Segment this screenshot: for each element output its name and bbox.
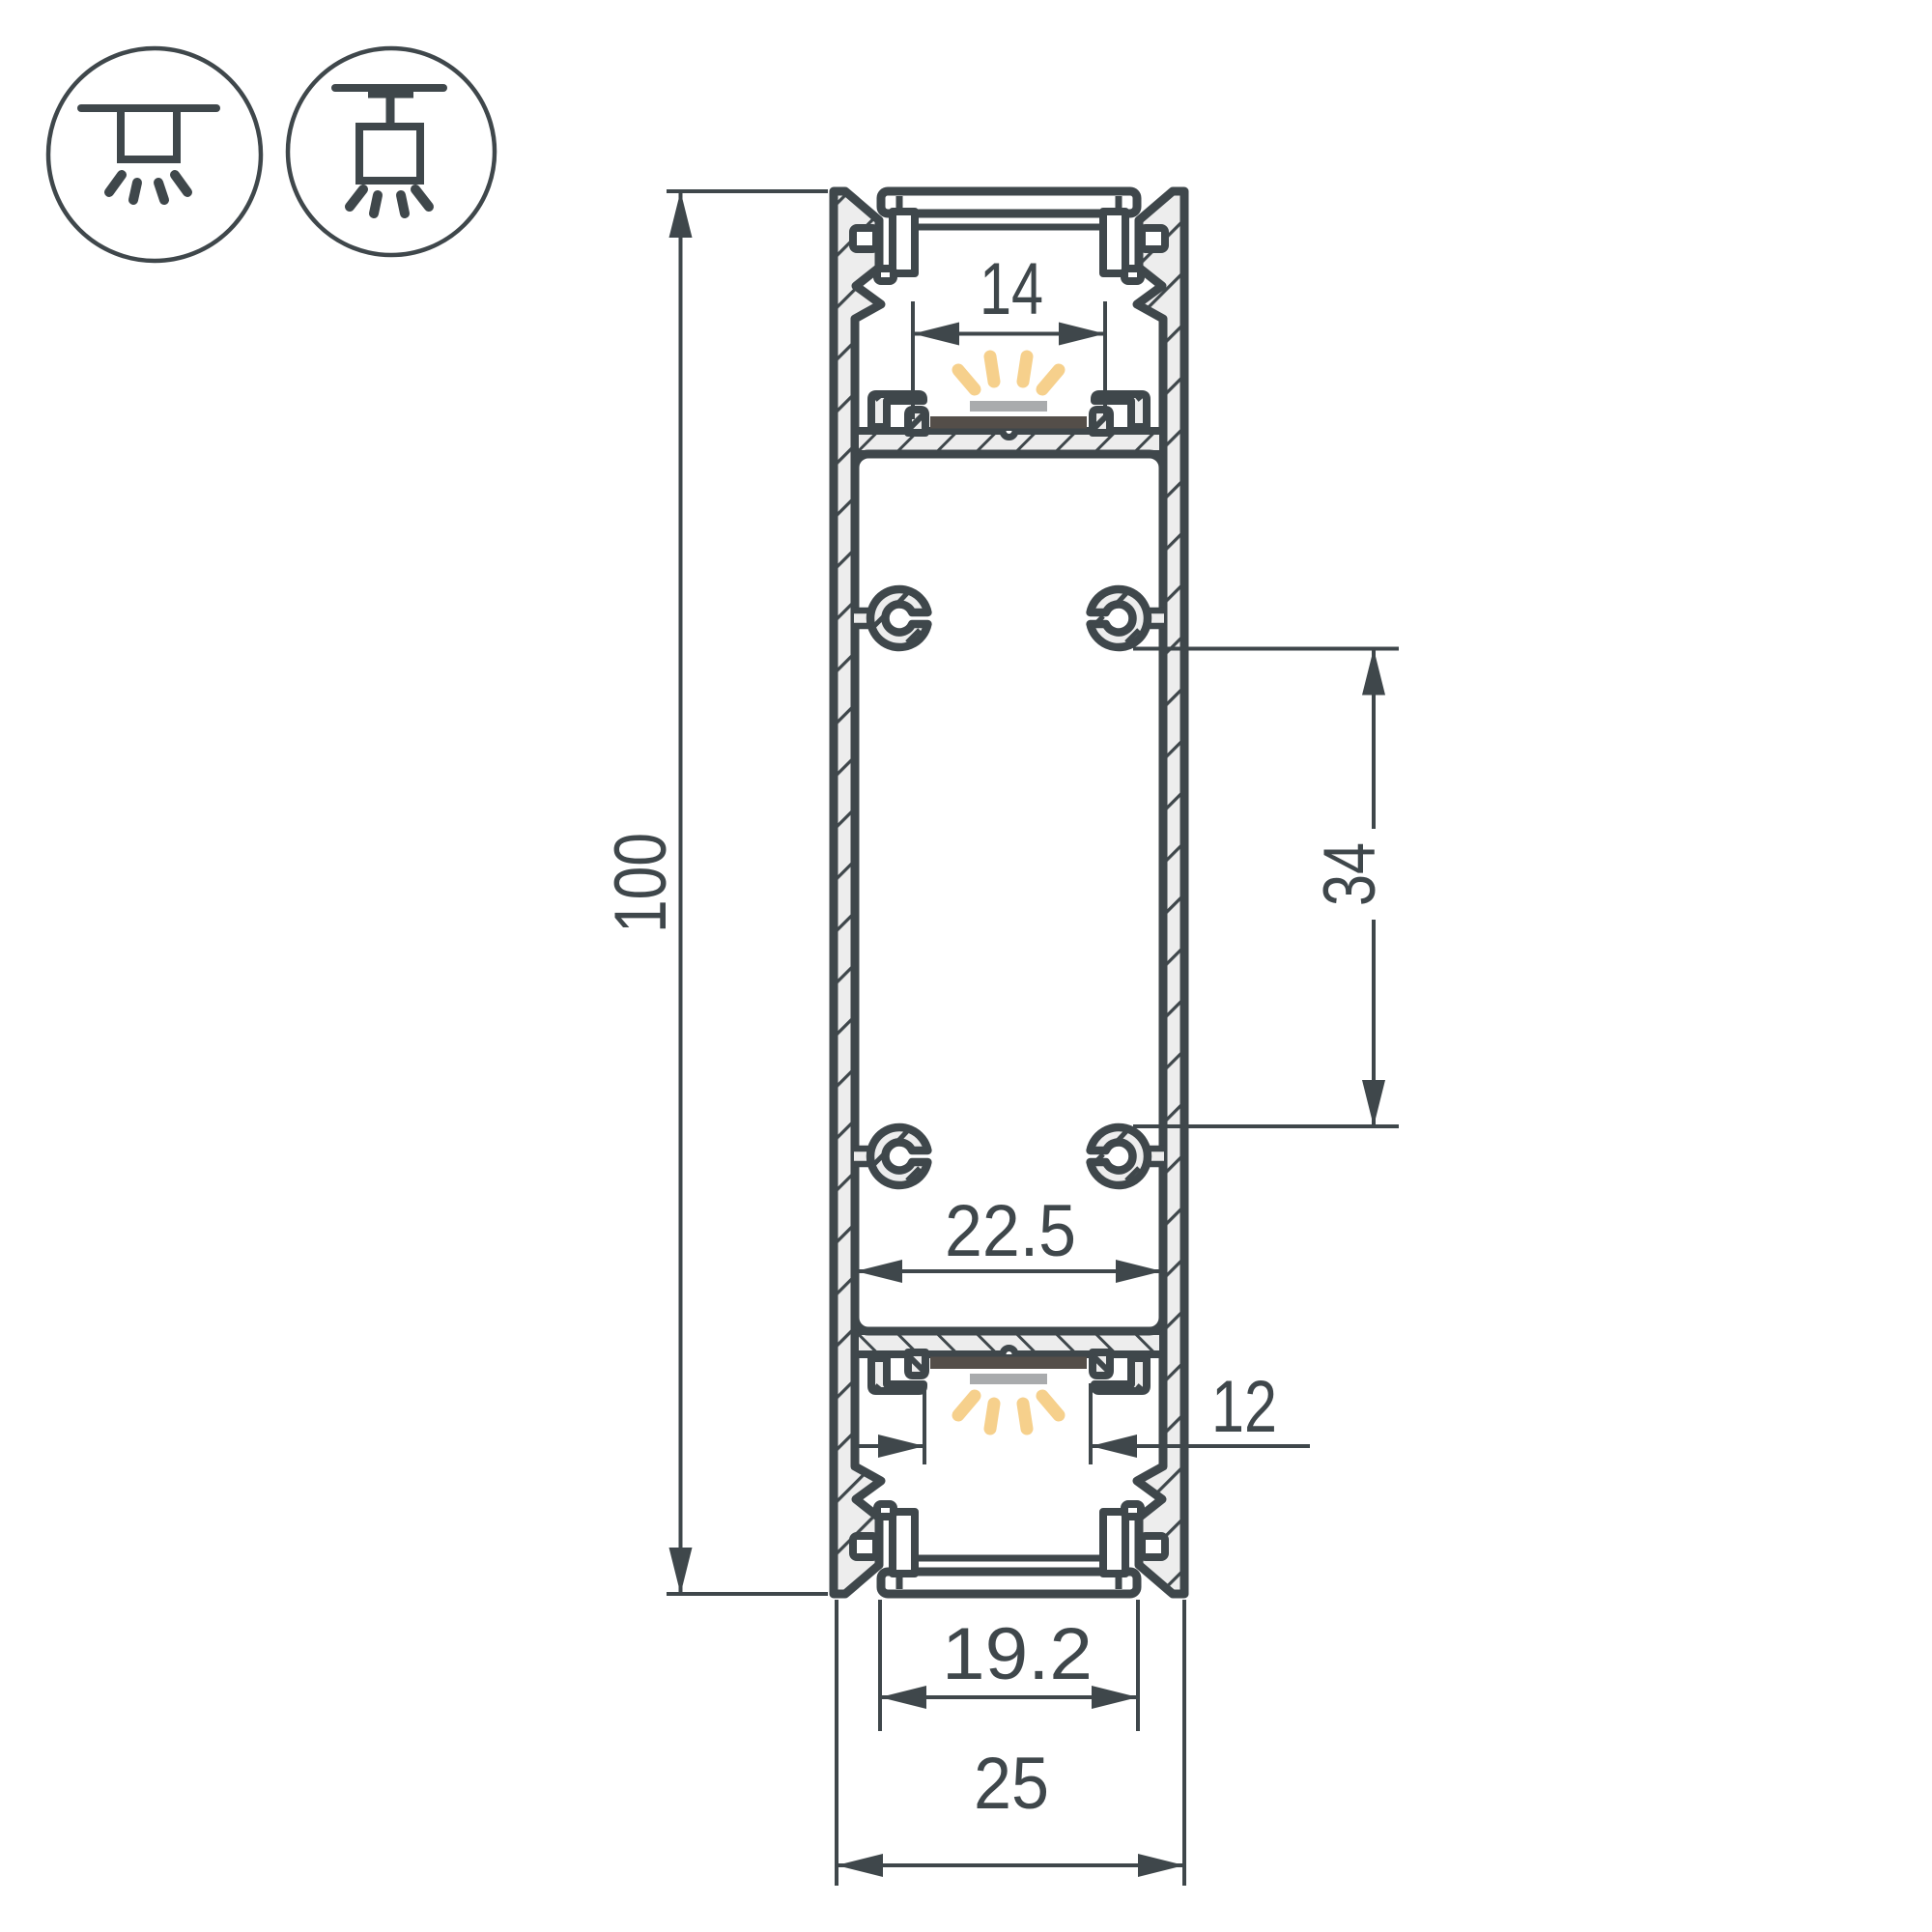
svg-text:19.2: 19.2: [942, 1613, 1093, 1695]
svg-text:22.5: 22.5: [945, 1190, 1076, 1272]
svg-text:100: 100: [600, 833, 682, 933]
svg-text:34: 34: [1309, 842, 1391, 906]
svg-text:12: 12: [1211, 1366, 1277, 1448]
svg-text:14: 14: [980, 248, 1043, 330]
svg-text:25: 25: [974, 1743, 1049, 1825]
